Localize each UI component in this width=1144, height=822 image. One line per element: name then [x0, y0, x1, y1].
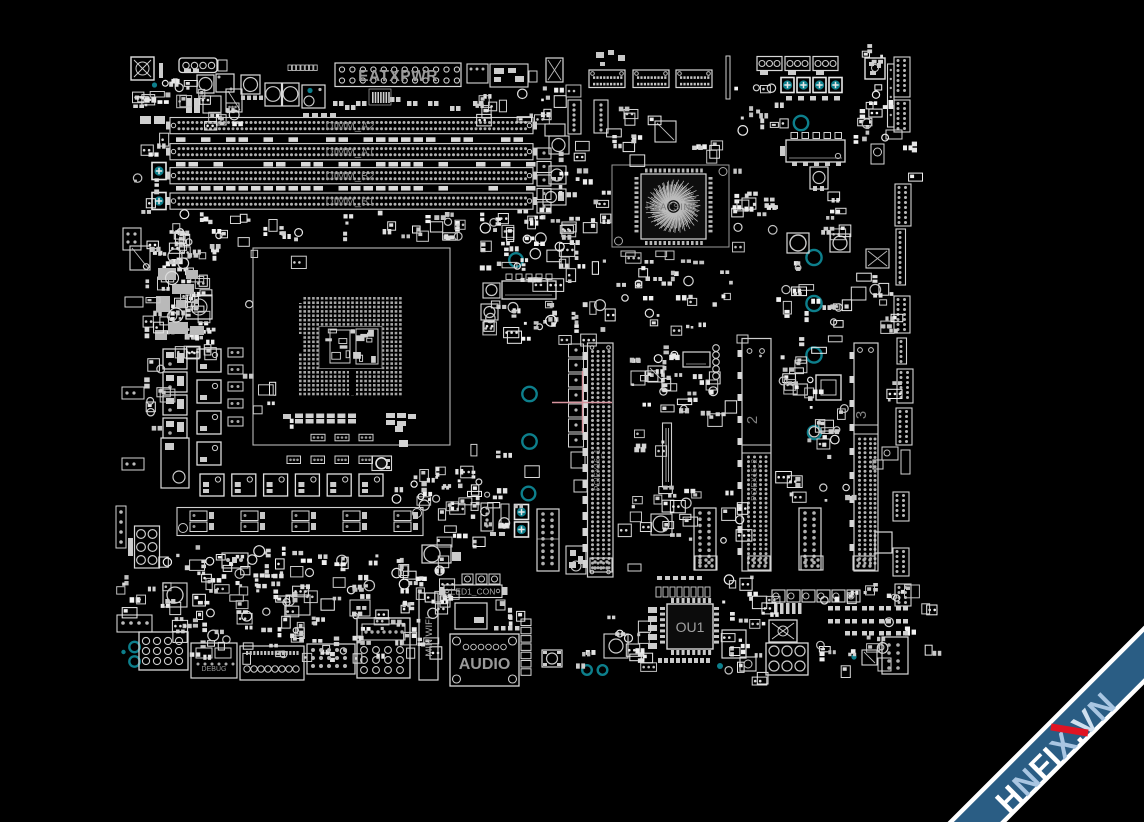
svg-text:2: 2 — [744, 416, 761, 424]
svg-text:DIMM_B2: DIMM_B2 — [326, 171, 375, 183]
svg-text:HEATSINK: HEATSINK — [646, 202, 698, 212]
svg-text:DIMM_A1: DIMM_A1 — [326, 147, 375, 159]
svg-text:LED1_CON: LED1_CON — [451, 587, 496, 597]
svg-text:DEBUG: DEBUG — [202, 666, 227, 673]
svg-text:PCIEX16_1: PCIEX16_1 — [593, 449, 602, 491]
svg-text:EATXPWR: EATXPWR — [358, 68, 438, 85]
svg-text:PCIEX16_2: PCIEX16_2 — [750, 459, 759, 501]
svg-text:MINIWIFI: MINIWIFI — [424, 616, 435, 656]
svg-text:DIMM_A2: DIMM_A2 — [326, 121, 375, 133]
svg-text:AUDIO: AUDIO — [459, 656, 511, 673]
svg-text:OU1: OU1 — [676, 619, 705, 635]
svg-text:DIMM_B1: DIMM_B1 — [326, 196, 375, 208]
svg-text:3: 3 — [853, 411, 870, 419]
